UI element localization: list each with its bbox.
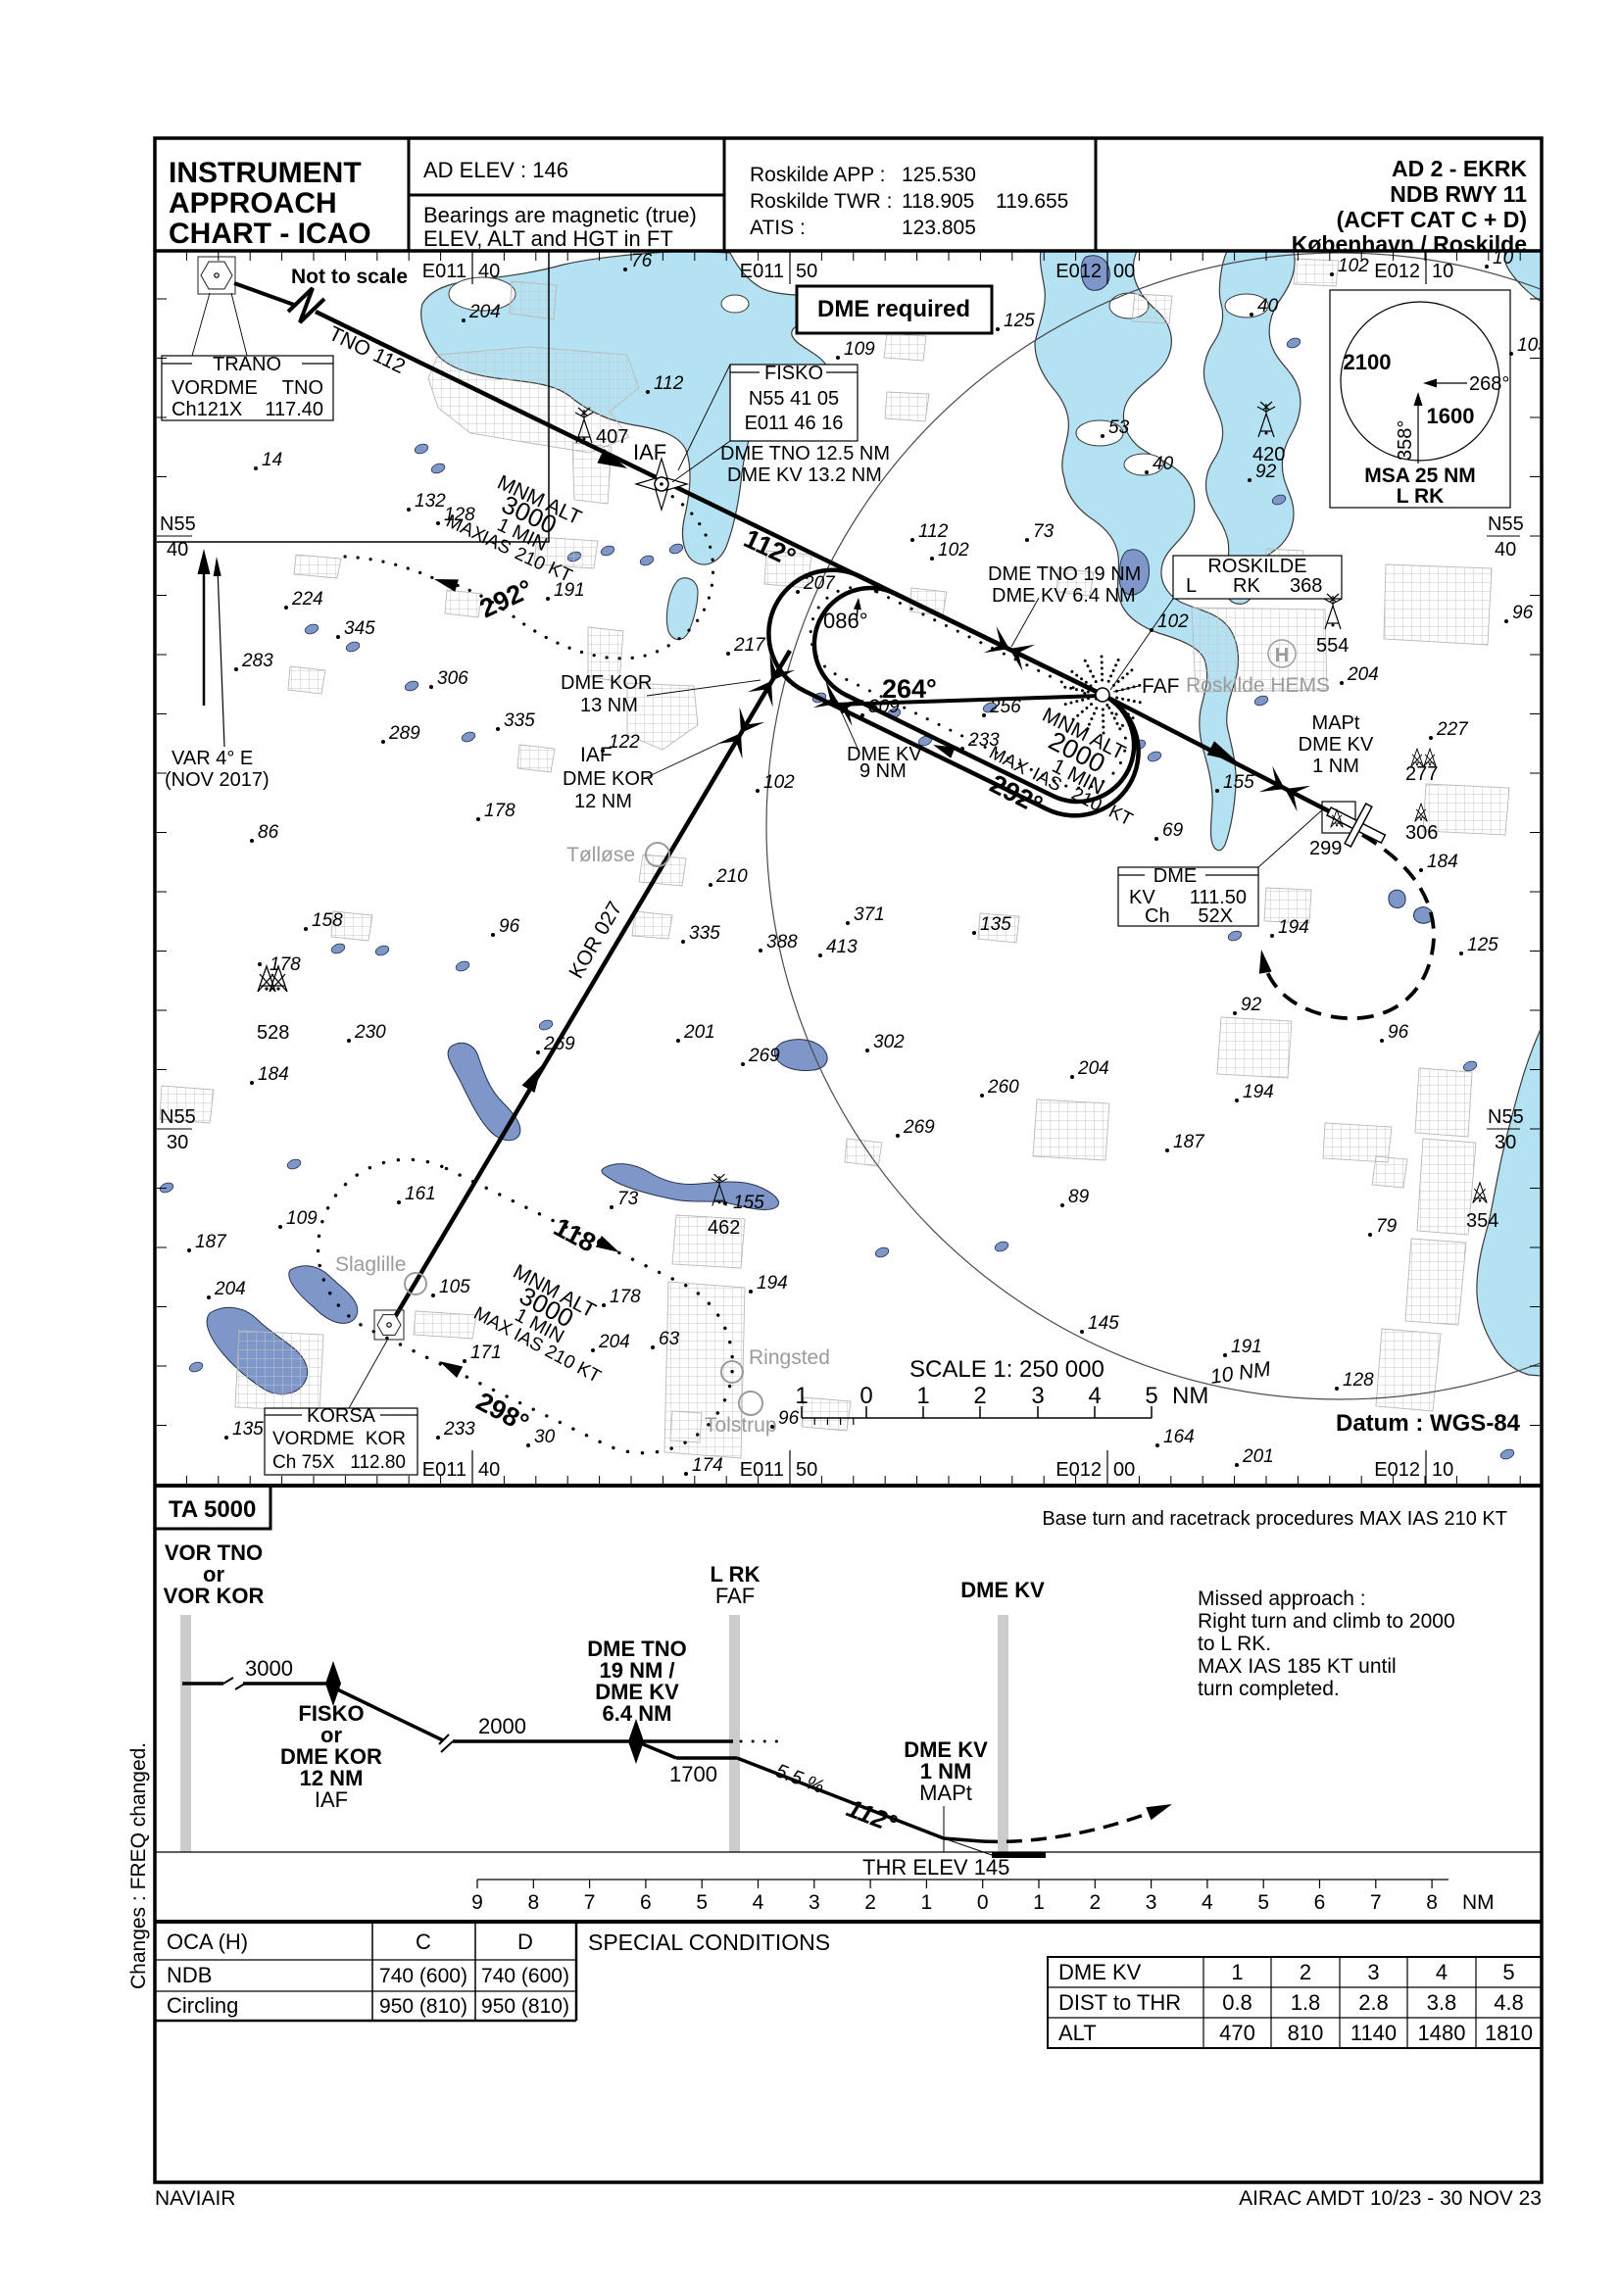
- svg-text:Bearings are magnetic (true): Bearings are magnetic (true): [423, 203, 697, 227]
- svg-text:1140: 1140: [1350, 2021, 1397, 2045]
- svg-text:1: 1: [921, 1891, 933, 1914]
- svg-text:AD ELEV : 146: AD ELEV : 146: [423, 158, 568, 182]
- svg-text:118.905: 118.905: [902, 190, 974, 213]
- svg-text:AIRAC AMDT 10/23 - 30 NOV 23: AIRAC AMDT 10/23 - 30 NOV 23: [1239, 2187, 1542, 2210]
- svg-text:D: D: [517, 1930, 533, 1954]
- svg-text:204: 204: [1077, 1058, 1109, 1079]
- svg-text:4: 4: [1202, 1891, 1213, 1914]
- svg-text:96: 96: [1388, 1022, 1409, 1043]
- svg-text:2000: 2000: [478, 1714, 526, 1738]
- svg-text:210: 210: [715, 866, 748, 887]
- svg-text:Ringsted: Ringsted: [749, 1346, 830, 1369]
- svg-text:København / Roskilde: København / Roskilde: [1292, 231, 1527, 257]
- svg-text:194: 194: [1278, 917, 1309, 938]
- svg-text:119.655: 119.655: [996, 190, 1068, 213]
- svg-text:5: 5: [1145, 1383, 1157, 1409]
- svg-text:RK: RK: [1233, 575, 1260, 597]
- svg-text:ALT: ALT: [1058, 2021, 1097, 2045]
- svg-text:4: 4: [753, 1891, 764, 1914]
- svg-text:277: 277: [1405, 763, 1438, 785]
- svg-text:40: 40: [478, 261, 500, 282]
- svg-text:7: 7: [584, 1891, 596, 1914]
- svg-text:950 (810): 950 (810): [379, 1995, 467, 2018]
- svg-text:2100: 2100: [1344, 350, 1392, 374]
- svg-text:224: 224: [291, 589, 323, 610]
- svg-text:Not to scale: Not to scale: [291, 266, 408, 288]
- svg-text:N55: N55: [1488, 513, 1524, 535]
- svg-text:VORDME: VORDME: [272, 1429, 354, 1449]
- svg-text:4: 4: [1088, 1383, 1101, 1409]
- svg-text:E012: E012: [1374, 1459, 1420, 1481]
- svg-text:L RK: L RK: [1397, 485, 1445, 508]
- svg-text:6: 6: [1314, 1891, 1326, 1914]
- svg-text:187: 187: [1173, 1132, 1205, 1152]
- svg-text:810: 810: [1288, 2021, 1324, 2045]
- svg-text:Roskilde HEMS: Roskilde HEMS: [1186, 674, 1330, 697]
- svg-text:CHART - ICAO: CHART - ICAO: [169, 218, 371, 250]
- svg-text:E012: E012: [1374, 261, 1420, 282]
- svg-text:Slaglille: Slaglille: [335, 1253, 406, 1276]
- svg-text:950 (810): 950 (810): [481, 1995, 569, 2018]
- svg-text:OCA (H): OCA (H): [167, 1930, 248, 1954]
- svg-text:10: 10: [1432, 261, 1453, 282]
- svg-text:164: 164: [1163, 1427, 1195, 1447]
- svg-text:IAF: IAF: [633, 440, 666, 464]
- svg-text:(ACFT CAT C + D): (ACFT CAT C + D): [1337, 207, 1527, 232]
- svg-text:269: 269: [903, 1117, 935, 1138]
- svg-text:Missed approach :: Missed approach :: [1198, 1588, 1366, 1610]
- svg-text:125: 125: [1467, 935, 1498, 955]
- svg-text:0.8: 0.8: [1222, 1990, 1252, 2015]
- svg-text:00: 00: [1113, 1459, 1135, 1481]
- svg-text:2: 2: [1300, 1960, 1311, 1984]
- svg-text:3: 3: [809, 1891, 820, 1914]
- svg-text:6.4 NM: 6.4 NM: [603, 1701, 672, 1726]
- svg-text:345: 345: [344, 618, 375, 639]
- svg-text:DME KV: DME KV: [1299, 734, 1374, 756]
- svg-text:1 NM: 1 NM: [1312, 756, 1359, 777]
- svg-text:306: 306: [437, 668, 468, 689]
- svg-text:2: 2: [864, 1891, 876, 1914]
- svg-text:53: 53: [1108, 417, 1130, 438]
- svg-text:268°: 268°: [1469, 373, 1509, 395]
- svg-text:DME TNO 19 NM: DME TNO 19 NM: [988, 563, 1141, 585]
- svg-text:407: 407: [596, 426, 628, 448]
- svg-text:FAF: FAF: [1142, 675, 1180, 698]
- svg-text:FAF: FAF: [715, 1584, 755, 1608]
- svg-text:DIST to THR: DIST to THR: [1058, 1990, 1181, 2015]
- svg-text:1: 1: [1033, 1891, 1045, 1914]
- svg-text:740 (600): 740 (600): [379, 1965, 467, 1987]
- svg-text:201: 201: [1242, 1446, 1274, 1467]
- svg-text:MAPt: MAPt: [919, 1781, 972, 1805]
- svg-text:8: 8: [1426, 1891, 1438, 1914]
- svg-text:0: 0: [859, 1383, 872, 1409]
- svg-text:112.80: 112.80: [350, 1452, 406, 1473]
- svg-text:INSTRUMENT: INSTRUMENT: [169, 157, 362, 189]
- svg-text:Roskilde APP :: Roskilde APP :: [750, 164, 886, 186]
- svg-text:DME TNO 12.5 NM: DME TNO 12.5 NM: [720, 443, 890, 464]
- svg-text:76: 76: [631, 251, 653, 271]
- svg-text:102: 102: [1157, 611, 1189, 632]
- svg-text:MAPt: MAPt: [1312, 712, 1360, 734]
- svg-text:TRANO: TRANO: [213, 354, 281, 375]
- svg-text:145: 145: [1088, 1313, 1119, 1334]
- svg-text:194: 194: [757, 1273, 788, 1294]
- svg-text:269: 269: [748, 1046, 780, 1066]
- svg-text:289: 289: [388, 723, 420, 744]
- svg-text:1480: 1480: [1418, 2021, 1466, 2045]
- svg-text:740 (600): 740 (600): [481, 1965, 569, 1987]
- svg-text:VORDME: VORDME: [172, 377, 258, 399]
- svg-text:128: 128: [1343, 1370, 1374, 1391]
- svg-text:4: 4: [1436, 1960, 1448, 1984]
- svg-text:102: 102: [938, 540, 969, 561]
- svg-text:69: 69: [1162, 820, 1184, 841]
- svg-text:3: 3: [1146, 1891, 1157, 1914]
- svg-text:0: 0: [977, 1891, 989, 1914]
- svg-text:14: 14: [262, 450, 282, 470]
- svg-text:IAF: IAF: [580, 744, 613, 766]
- svg-text:470: 470: [1219, 2021, 1255, 2045]
- svg-text:FISKO: FISKO: [764, 363, 823, 384]
- svg-text:ATIS :: ATIS :: [750, 217, 806, 239]
- svg-text:52X: 52X: [1198, 905, 1233, 927]
- svg-text:184: 184: [1427, 852, 1458, 872]
- svg-text:40: 40: [1257, 296, 1279, 317]
- svg-text:50: 50: [796, 261, 817, 282]
- svg-text:Ch 75X: Ch 75X: [272, 1452, 335, 1473]
- svg-text:299: 299: [1309, 838, 1342, 859]
- svg-text:96: 96: [1512, 603, 1534, 623]
- svg-text:204: 204: [468, 302, 501, 322]
- svg-text:2.8: 2.8: [1358, 1990, 1389, 2015]
- svg-text:086°: 086°: [823, 609, 868, 633]
- svg-text:Tolstrup: Tolstrup: [705, 1414, 777, 1437]
- svg-text:E011: E011: [740, 261, 784, 282]
- svg-text:354: 354: [1466, 1210, 1498, 1232]
- svg-text:112: 112: [654, 373, 684, 394]
- svg-text:Circling: Circling: [167, 1993, 238, 2018]
- svg-text:204: 204: [598, 1332, 630, 1352]
- svg-text:N55: N55: [160, 1106, 196, 1128]
- svg-text:269: 269: [543, 1034, 575, 1054]
- svg-text:Base turn and racetrack proced: Base turn and racetrack procedures MAX I…: [1042, 1508, 1507, 1530]
- svg-text:ROSKILDE: ROSKILDE: [1207, 556, 1306, 577]
- svg-text:128: 128: [444, 505, 475, 525]
- svg-text:388: 388: [766, 932, 798, 953]
- svg-text:302: 302: [873, 1032, 905, 1052]
- svg-text:122: 122: [609, 732, 640, 753]
- svg-text:109: 109: [844, 339, 875, 360]
- svg-text:4.8: 4.8: [1494, 1990, 1524, 2015]
- svg-text:358°: 358°: [1395, 420, 1416, 461]
- svg-text:TA 5000: TA 5000: [169, 1496, 256, 1523]
- svg-text:1: 1: [795, 1383, 808, 1409]
- svg-text:96: 96: [499, 916, 520, 937]
- svg-text:73: 73: [1033, 521, 1055, 542]
- svg-text:233: 233: [967, 730, 1000, 751]
- svg-text:135: 135: [980, 914, 1011, 935]
- svg-text:5: 5: [1257, 1891, 1269, 1914]
- svg-text:178: 178: [270, 954, 301, 975]
- svg-text:256: 256: [989, 697, 1021, 717]
- svg-text:Ch121X: Ch121X: [172, 399, 242, 420]
- svg-text:13 NM: 13 NM: [580, 695, 638, 716]
- svg-text:5: 5: [696, 1891, 708, 1914]
- svg-text:201: 201: [683, 1022, 715, 1043]
- svg-text:NDB: NDB: [167, 1963, 212, 1987]
- svg-text:DME: DME: [1154, 865, 1197, 887]
- svg-text:112: 112: [918, 521, 949, 542]
- svg-text:12 NM: 12 NM: [574, 791, 632, 812]
- svg-text:NDB RWY 11: NDB RWY 11: [1390, 181, 1527, 207]
- svg-text:1.8: 1.8: [1291, 1990, 1321, 2015]
- svg-text:APPROACH: APPROACH: [169, 187, 337, 220]
- svg-text:IAF: IAF: [315, 1787, 348, 1812]
- svg-text:Datum : WGS-84: Datum : WGS-84: [1336, 1410, 1521, 1437]
- svg-text:MSA 25 NM: MSA 25 NM: [1364, 464, 1476, 487]
- svg-text:2: 2: [973, 1383, 986, 1409]
- svg-text:158: 158: [312, 910, 343, 931]
- svg-text:VOR KOR: VOR KOR: [164, 1584, 265, 1608]
- svg-text:79: 79: [1376, 1216, 1398, 1237]
- svg-text:204: 204: [214, 1279, 246, 1299]
- svg-text:204: 204: [1347, 664, 1379, 685]
- svg-text:7: 7: [1370, 1891, 1382, 1914]
- svg-text:207: 207: [803, 573, 836, 594]
- svg-text:335: 335: [504, 710, 535, 731]
- svg-text:E011: E011: [740, 1459, 784, 1481]
- svg-text:50: 50: [796, 1459, 817, 1481]
- svg-text:SCALE 1: 250 000: SCALE 1: 250 000: [909, 1356, 1105, 1383]
- svg-text:413: 413: [826, 937, 858, 957]
- svg-text:92: 92: [1241, 995, 1262, 1015]
- svg-text:ELEV, ALT and HGT in FT: ELEV, ALT and HGT in FT: [423, 226, 673, 251]
- svg-text:L: L: [1186, 575, 1197, 597]
- svg-text:194: 194: [1243, 1082, 1274, 1102]
- svg-text:NM: NM: [1462, 1891, 1495, 1914]
- svg-text:N55 41 05: N55 41 05: [749, 388, 839, 410]
- svg-text:89: 89: [1068, 1187, 1090, 1207]
- svg-text:N55: N55: [1488, 1106, 1524, 1128]
- svg-text:184: 184: [258, 1064, 289, 1085]
- svg-text:3000: 3000: [245, 1656, 293, 1681]
- svg-text:VAR 4° E: VAR 4° E: [172, 748, 253, 769]
- svg-text:178: 178: [610, 1287, 641, 1307]
- svg-text:5: 5: [1502, 1960, 1514, 1984]
- svg-text:260: 260: [987, 1077, 1019, 1098]
- svg-text:E012: E012: [1055, 261, 1102, 282]
- svg-text:DME KOR: DME KOR: [561, 672, 652, 694]
- svg-text:1810: 1810: [1485, 2021, 1533, 2045]
- svg-text:125: 125: [1004, 311, 1035, 331]
- svg-text:371: 371: [854, 904, 885, 925]
- svg-text:8: 8: [527, 1891, 539, 1914]
- svg-text:Roskilde TWR :: Roskilde TWR :: [750, 190, 892, 213]
- svg-text:3: 3: [1367, 1960, 1379, 1984]
- svg-text:MAX IAS 185 KT until: MAX IAS 185 KT until: [1198, 1655, 1397, 1678]
- svg-text:9 NM: 9 NM: [859, 760, 907, 782]
- svg-text:125.530: 125.530: [902, 164, 976, 186]
- svg-text:174: 174: [692, 1455, 723, 1476]
- svg-text:191: 191: [554, 580, 585, 601]
- svg-text:554: 554: [1316, 635, 1349, 657]
- svg-text:191: 191: [1231, 1337, 1262, 1357]
- svg-text:528: 528: [257, 1022, 289, 1044]
- svg-text:3: 3: [1031, 1383, 1044, 1409]
- svg-text:SPECIAL CONDITIONS: SPECIAL CONDITIONS: [588, 1930, 830, 1955]
- svg-text:155: 155: [1223, 772, 1254, 793]
- svg-text:233: 233: [443, 1419, 475, 1440]
- svg-text:DME KV: DME KV: [1058, 1960, 1142, 1984]
- svg-text:THR ELEV 145: THR ELEV 145: [862, 1855, 1009, 1880]
- svg-text:1700: 1700: [669, 1762, 717, 1786]
- svg-text:KORSA: KORSA: [307, 1405, 376, 1427]
- svg-text:E012: E012: [1055, 1459, 1102, 1481]
- svg-text:1: 1: [1231, 1960, 1243, 1984]
- svg-text:30: 30: [167, 1132, 188, 1153]
- svg-text:DME KV: DME KV: [960, 1578, 1045, 1602]
- svg-text:462: 462: [708, 1217, 740, 1239]
- svg-text:TNO: TNO: [282, 377, 323, 399]
- svg-text:DME KV 13.2 NM: DME KV 13.2 NM: [727, 464, 882, 486]
- svg-text:C: C: [416, 1930, 431, 1954]
- svg-text:40: 40: [1153, 454, 1174, 474]
- svg-text:Right turn and climb to 2000: Right turn and climb to 2000: [1198, 1610, 1455, 1633]
- svg-text:Changes : FREQ changed.: Changes : FREQ changed.: [127, 1742, 150, 1989]
- svg-text:DME KOR: DME KOR: [563, 768, 654, 790]
- svg-text:AD 2 - EKRK: AD 2 - EKRK: [1392, 156, 1527, 181]
- svg-text:161: 161: [405, 1184, 436, 1204]
- svg-text:178: 178: [484, 801, 515, 821]
- svg-text:309: 309: [868, 697, 900, 717]
- svg-text:227: 227: [1436, 719, 1469, 740]
- svg-text:(NOV 2017): (NOV 2017): [165, 769, 270, 791]
- svg-text:E011 46 16: E011 46 16: [745, 413, 844, 434]
- svg-text:63: 63: [659, 1329, 680, 1349]
- svg-text:30: 30: [1495, 1132, 1516, 1153]
- svg-text:to L RK.: to L RK.: [1198, 1633, 1271, 1655]
- svg-text:Ch: Ch: [1145, 905, 1170, 927]
- svg-text:Tølløse: Tølløse: [566, 844, 635, 866]
- svg-text:DME KV 6.4 NM: DME KV 6.4 NM: [992, 585, 1136, 607]
- svg-text:NM: NM: [1172, 1383, 1208, 1409]
- svg-text:2: 2: [1089, 1891, 1101, 1914]
- svg-text:73: 73: [617, 1189, 639, 1209]
- svg-text:155: 155: [733, 1193, 764, 1213]
- svg-text:96: 96: [778, 1408, 800, 1429]
- svg-text:9: 9: [471, 1891, 483, 1914]
- svg-text:turn completed.: turn completed.: [1198, 1678, 1340, 1700]
- svg-text:6: 6: [640, 1891, 652, 1914]
- svg-text:3.8: 3.8: [1427, 1990, 1457, 2015]
- svg-text:306: 306: [1405, 822, 1438, 844]
- svg-text:117.40: 117.40: [265, 399, 323, 420]
- svg-text:DME required: DME required: [817, 296, 970, 322]
- svg-text:40: 40: [1495, 539, 1516, 561]
- svg-text:105: 105: [439, 1277, 470, 1297]
- svg-text:E011: E011: [422, 261, 466, 282]
- svg-text:86: 86: [258, 822, 279, 843]
- svg-text:123.805: 123.805: [902, 217, 976, 239]
- svg-text:KOR: KOR: [366, 1429, 406, 1449]
- svg-text:230: 230: [354, 1022, 386, 1043]
- svg-text:40: 40: [478, 1459, 500, 1481]
- svg-text:30: 30: [534, 1427, 556, 1447]
- svg-text:135: 135: [232, 1419, 264, 1440]
- svg-text:10: 10: [1432, 1459, 1453, 1481]
- svg-text:335: 335: [689, 923, 720, 944]
- svg-text:NAVIAIR: NAVIAIR: [155, 2187, 235, 2210]
- svg-text:171: 171: [470, 1343, 502, 1363]
- svg-text:E011: E011: [422, 1459, 466, 1481]
- svg-text:283: 283: [241, 651, 273, 671]
- svg-text:217: 217: [733, 635, 766, 656]
- svg-text:92: 92: [1255, 462, 1277, 482]
- svg-text:1: 1: [916, 1383, 929, 1409]
- svg-text:102: 102: [763, 772, 795, 793]
- svg-text:N55: N55: [160, 513, 196, 535]
- svg-text:H: H: [1275, 645, 1289, 666]
- svg-text:1600: 1600: [1427, 404, 1475, 428]
- svg-text:132: 132: [415, 491, 446, 512]
- svg-text:40: 40: [167, 539, 188, 561]
- svg-text:109: 109: [286, 1208, 318, 1229]
- svg-text:00: 00: [1113, 261, 1135, 282]
- svg-text:368: 368: [1290, 575, 1322, 597]
- svg-text:102: 102: [1338, 256, 1369, 276]
- svg-text:187: 187: [195, 1232, 227, 1252]
